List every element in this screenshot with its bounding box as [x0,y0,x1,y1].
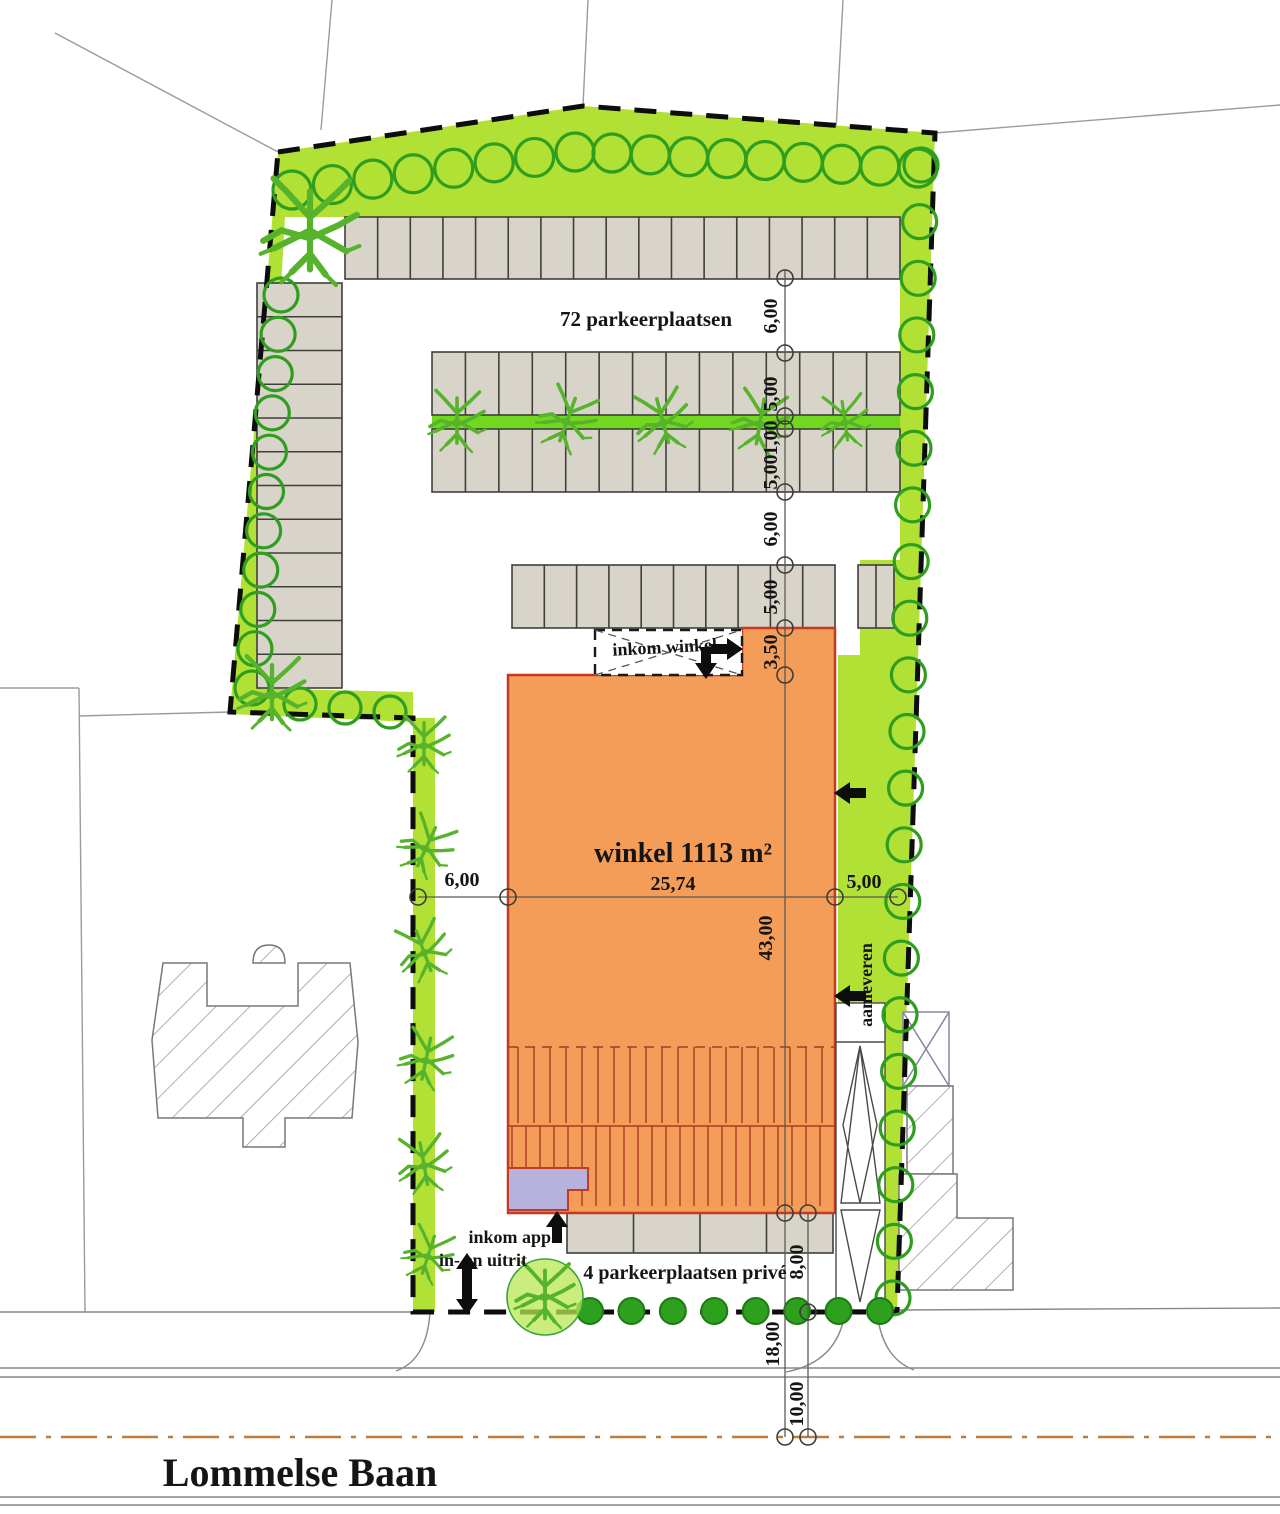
dim-upper-stall: 5,00 [760,377,782,412]
dim-top-aisle: 6,00 [760,299,782,334]
parking-row-south [512,565,835,628]
road: Lommelse Baan [0,1308,1280,1505]
dim-entrance-depth: 3,50 [760,635,782,670]
dim-lower-stall: 5,00 [760,455,782,490]
apartment-entrance-label: inkom app. [468,1227,555,1247]
dim-building-to-boundary: 8,00 [786,1245,808,1280]
road-name-label: Lommelse Baan [163,1450,437,1495]
shop-building: winkel 1113 m² [508,628,835,1213]
dim-south-aisle: 6,00 [760,512,782,547]
parking-column-west [257,283,342,688]
existing-house-west [152,945,358,1147]
dim-south-stall: 5,00 [760,580,782,615]
dim-boundary-to-road-axis: 10,00 [786,1382,808,1427]
driveway-label: in- en uitrit [439,1250,527,1270]
parking-row-north [345,217,900,279]
dim-building-width: 25,74 [651,873,696,895]
dim-building-to-road-axis: 18,00 [762,1322,784,1367]
parking-total-label: 72 parkeerplaatsen [560,307,732,331]
shop-area-label: winkel 1113 m² [594,838,772,869]
site-plan-page: Lommelse Baan winkel 1113 m² inkom winke… [0,0,1280,1514]
dim-west-gap: 6,00 [445,869,480,891]
neighbour-buildings-east [899,1012,1013,1290]
delivery-label: aanleveren [856,943,876,1027]
parking-row-south-east [858,565,894,628]
loading-bay [836,1003,885,1310]
driveway-flare-left [396,1312,430,1371]
dim-tree-strip: 1,00 [760,421,782,456]
site-plan-drawing: Lommelse Baan winkel 1113 m² inkom winke… [0,0,1280,1514]
green-strip-southwest [413,718,435,1312]
private-parking-label: 4 parkeerplaatsen privé [583,1262,786,1284]
dim-east-gap: 5,00 [847,871,882,893]
dim-building-length: 43,00 [755,916,777,961]
